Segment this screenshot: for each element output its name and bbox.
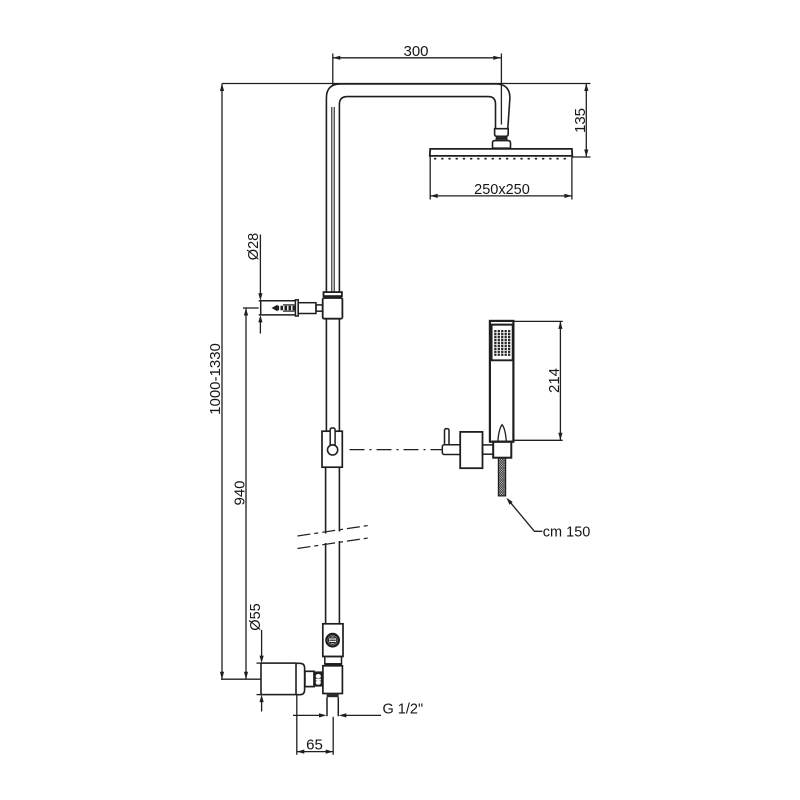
svg-text:300: 300 — [403, 43, 428, 60]
svg-text:65: 65 — [306, 736, 323, 753]
svg-text:940: 940 — [231, 480, 248, 505]
svg-text:Ø28: Ø28 — [246, 233, 262, 260]
svg-text:G 1/2": G 1/2" — [383, 701, 424, 717]
svg-text:135: 135 — [572, 108, 589, 133]
svg-text:cm 150: cm 150 — [543, 524, 591, 540]
svg-text:Ø55: Ø55 — [248, 603, 264, 630]
svg-text:214: 214 — [546, 368, 563, 393]
svg-text:250x250: 250x250 — [474, 182, 530, 198]
svg-text:1000-1330: 1000-1330 — [207, 343, 224, 415]
